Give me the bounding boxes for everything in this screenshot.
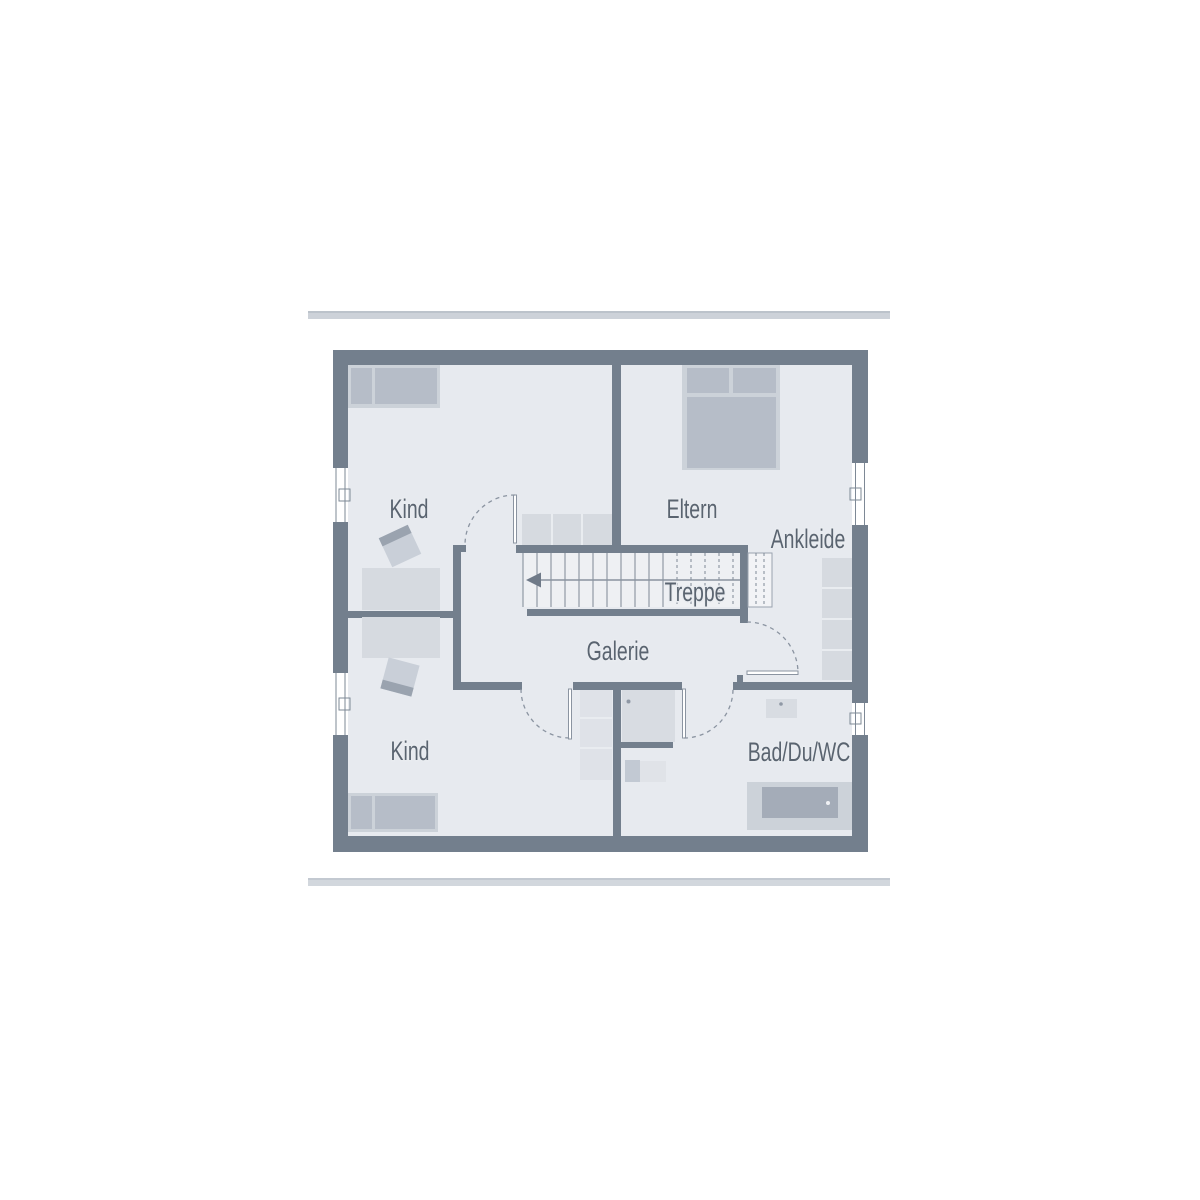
- shelf-column: [580, 690, 612, 780]
- room-label-treppe: Treppe: [665, 577, 726, 607]
- window-left-lower: [333, 673, 350, 735]
- room-label-ankleide: Ankleide: [771, 524, 846, 554]
- bed-eltern: [682, 365, 780, 470]
- floor-plan-canvas: Kind Eltern Ankleide Treppe Galerie Kind…: [0, 0, 1200, 1200]
- window-left-upper: [333, 468, 350, 522]
- bottom-divider-bar: [308, 878, 890, 886]
- top-divider-bar: [308, 311, 890, 319]
- toilet: [625, 760, 666, 782]
- wardrobe-ankleide: [822, 558, 852, 680]
- desk-kind-top: [362, 568, 440, 610]
- window-right-lower: [850, 703, 868, 735]
- bed-kind-top: [348, 365, 440, 408]
- stair-railing: [527, 609, 743, 616]
- stair-winder-box: [748, 553, 772, 607]
- room-label-kind-top: Kind: [390, 494, 429, 524]
- desk-kind-bottom: [362, 617, 440, 658]
- room-label-galerie: Galerie: [587, 636, 650, 666]
- staircase: [523, 553, 772, 616]
- bed-kind-bottom: [348, 793, 438, 832]
- room-label-bad: Bad/Du/WC: [748, 737, 851, 767]
- washbasin: [766, 699, 797, 718]
- bathtub: [747, 782, 852, 830]
- room-label-kind-bottom: Kind: [391, 736, 430, 766]
- window-right-upper: [850, 463, 868, 525]
- sideboard-galerie: [522, 514, 612, 545]
- shower: [622, 690, 675, 742]
- room-label-eltern: Eltern: [667, 494, 718, 524]
